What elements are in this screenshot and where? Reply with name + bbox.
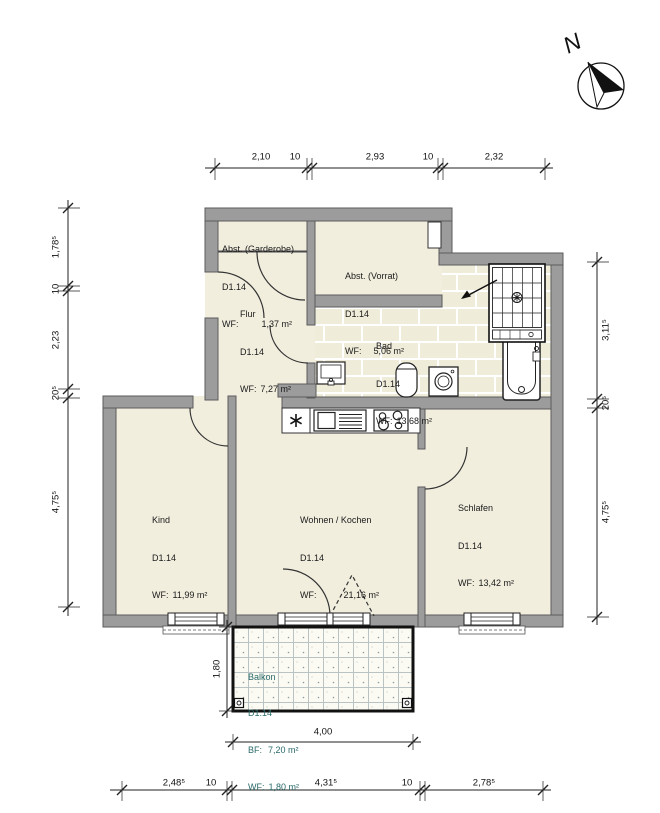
dim-left-4: 4,75⁵	[51, 491, 62, 513]
wf-label: WF:	[248, 781, 265, 793]
wall-segment	[418, 487, 425, 627]
room-id: D1.14	[376, 378, 432, 391]
wf-value: 13,42 m²	[479, 577, 515, 590]
dimension-chain-left	[58, 200, 80, 616]
balcony-post	[235, 699, 244, 708]
bf-value: 7,20 m²	[268, 744, 299, 756]
wf-label: WF:	[152, 589, 169, 602]
room-label-flur: Flur D1.14 WF: 7,27 m²	[240, 283, 291, 408]
shower	[489, 264, 545, 342]
wf-label: WF:	[345, 345, 362, 358]
dim-left-0: 1,78⁵	[51, 236, 62, 258]
entry-niche	[428, 222, 441, 248]
room-label-bad: Bad D1.14 WF: 13,68 m²	[376, 315, 432, 440]
room-name: Kind	[152, 514, 207, 527]
dim-right-1: 20⁵	[601, 396, 612, 411]
floor-schlafen-door-gap	[418, 449, 425, 487]
room-name: Flur	[240, 308, 291, 321]
wall-segment	[551, 265, 563, 627]
dim-top-2: 2,93	[366, 152, 385, 163]
wf-value: 1,80 m²	[269, 781, 300, 793]
dim-top-4: 2,32	[485, 152, 504, 163]
room-id: D1.14	[240, 346, 291, 359]
room-name: Balkon	[248, 671, 299, 683]
dim-left-2: 2,23	[51, 331, 62, 350]
floorplan-canvas	[0, 0, 660, 813]
dim-bottom-4: 2,78⁵	[473, 778, 495, 789]
dim-right-2: 4,75⁵	[601, 501, 612, 523]
wf-label: WF:	[300, 589, 317, 602]
north-arrow-icon	[578, 62, 624, 109]
room-name: Bad	[376, 340, 432, 353]
window-kind	[163, 613, 229, 634]
bathroom-sink	[317, 362, 345, 385]
dim-bottom-1: 10	[206, 778, 217, 789]
room-id: D1.14	[300, 552, 379, 565]
dim-balcony-depth: 1,80	[212, 660, 223, 679]
wf-value: 7,27 m²	[261, 383, 292, 396]
wall-segment	[205, 221, 218, 272]
wf-value: 11,99 m²	[173, 589, 208, 602]
room-name: Schlafen	[458, 502, 514, 515]
wall-segment	[103, 396, 193, 408]
wall-segment	[228, 396, 236, 627]
floor-bad-door-gap	[307, 325, 315, 363]
room-id: D1.14	[152, 552, 207, 565]
wf-value: 13,68 m²	[397, 415, 433, 428]
dim-bottom-3: 10	[402, 778, 413, 789]
wf-label: WF:	[222, 318, 239, 331]
room-id: D1.14	[458, 540, 514, 553]
room-name: Wohnen / Kochen	[300, 514, 379, 527]
wall-segment	[103, 396, 116, 627]
balcony-post	[403, 699, 412, 708]
dim-bottom-0: 2,48⁵	[163, 778, 185, 789]
dim-left-3: 20⁵	[51, 386, 62, 401]
room-label-schlafen: Schlafen D1.14 WF: 13,42 m²	[458, 477, 514, 602]
dim-top-0: 2,10	[252, 152, 271, 163]
window-schlafen	[459, 613, 525, 634]
dim-bottom-2: 4,31⁵	[315, 778, 337, 789]
floor-entrance-gap	[205, 272, 218, 318]
room-name: Abst. (Garderobe)	[222, 243, 294, 256]
washing-machine	[429, 367, 458, 396]
room-label-kind: Kind D1.14 WF: 11,99 m²	[152, 489, 207, 614]
room-id: D1.14	[248, 707, 299, 719]
shower-drain-icon	[512, 293, 522, 303]
wall-segment	[307, 221, 315, 325]
wall-segment	[205, 318, 218, 400]
floorplan-page: N Abst. (Garderobe) D1.14 WF: 1,37 m² Ab…	[0, 0, 660, 813]
dimension-chain-right	[587, 252, 609, 625]
bf-label: BF:	[248, 744, 262, 756]
wf-label: WF:	[376, 415, 393, 428]
wf-label: WF:	[240, 383, 257, 396]
dim-balcony-width: 4,00	[314, 727, 333, 738]
dim-top-1: 10	[290, 152, 301, 163]
room-label-balkon: Balkon D1.14 BF: 7,20 m² WF: 1,80 m²	[248, 646, 299, 806]
dim-top-3: 10	[423, 152, 434, 163]
wf-value: 21,16 m²	[343, 589, 379, 602]
room-label-wohnen: Wohnen / Kochen D1.14 WF: 21,16 m²	[300, 489, 379, 614]
wf-label: WF:	[458, 577, 475, 590]
room-name: Abst. (Vorrat)	[345, 270, 404, 283]
dim-left-1: 10	[51, 284, 62, 295]
dim-right-0: 3,11⁵	[601, 319, 612, 341]
